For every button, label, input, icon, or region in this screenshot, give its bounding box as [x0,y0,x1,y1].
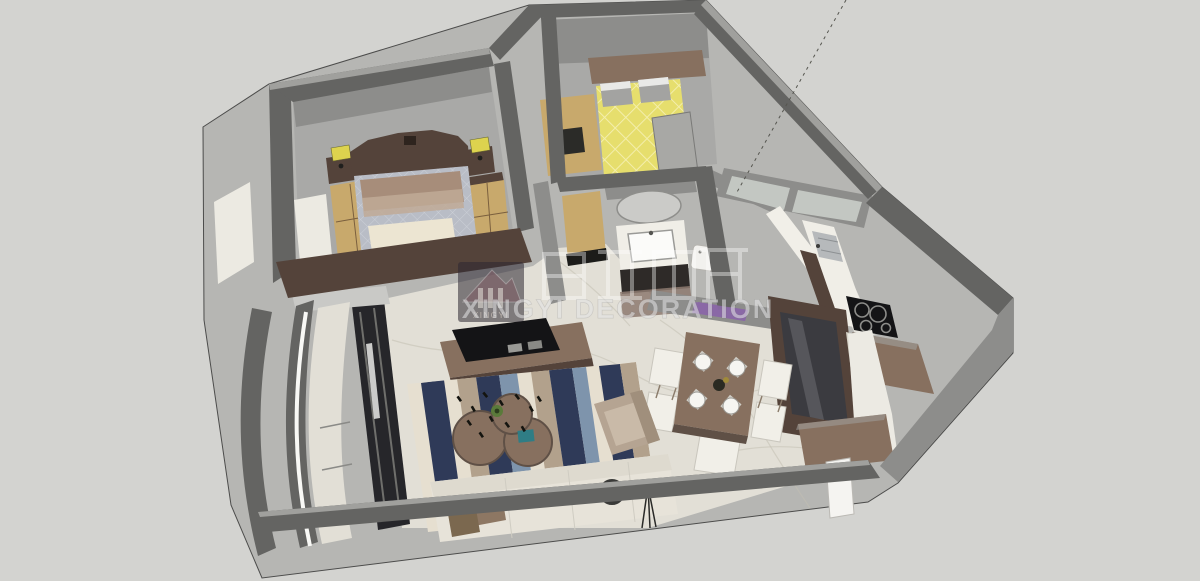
watermark-brand-text: XINGYI DECORATION [462,294,775,324]
apartment-3d-cutaway: XINGYI XINGYI DECORATION [0,0,1200,581]
dining-chair-4 [751,402,786,442]
plant-center [495,409,500,414]
master-bedroom-dresser [294,194,332,262]
coffee-table-tray [517,429,534,443]
table-lamp-left [331,145,351,161]
dining-chair-3 [758,360,792,400]
sink-faucet [649,231,653,235]
floorplan-render: XINGYI XINGYI DECORATION [0,0,1200,581]
dining-chair-5 [694,436,740,476]
headboard-ornament [404,136,416,145]
lamp-right-base [478,156,483,161]
kitchen-faucet [816,244,820,248]
centerpiece-accent [723,377,729,383]
dining-chair-1 [649,348,684,388]
lamp-left-base [339,164,344,169]
table-lamp-right [470,137,490,153]
